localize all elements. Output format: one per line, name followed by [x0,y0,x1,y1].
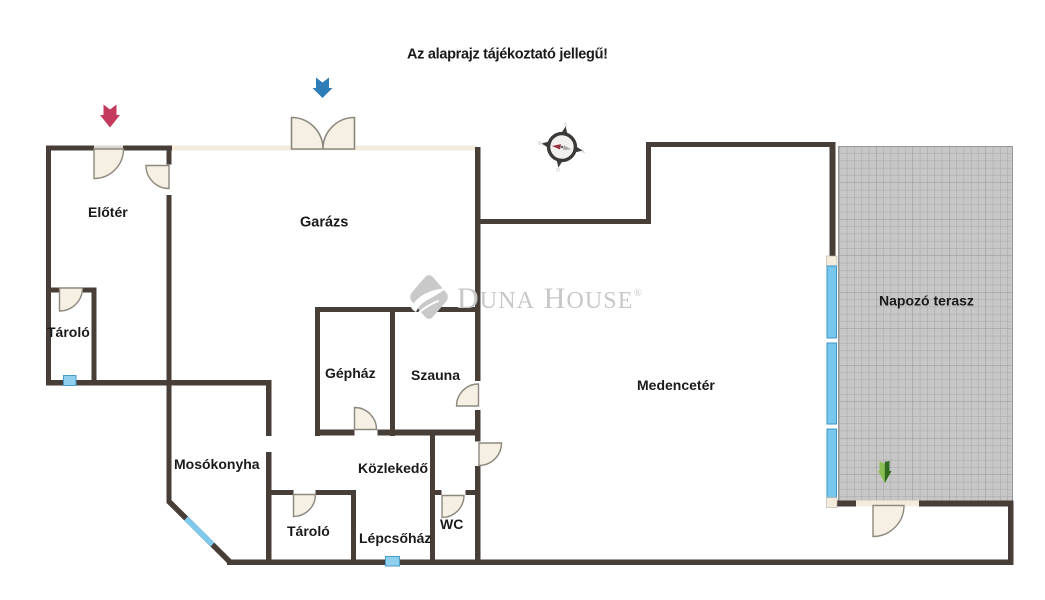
svg-text:Közlekedő: Közlekedő [358,460,428,476]
svg-text:Napozó terasz: Napozó terasz [879,293,974,309]
svg-text:DUNA HOUSE®: DUNA HOUSE® [457,282,643,315]
svg-text:Medencetér: Medencetér [637,377,715,393]
svg-text:Előtér: Előtér [88,204,128,220]
svg-text:Szauna: Szauna [411,367,460,383]
svg-text:Az alaprajz tájékoztató jelleg: Az alaprajz tájékoztató jellegű! [407,47,608,63]
svg-text:Mosókonyha: Mosókonyha [174,456,260,472]
svg-text:Gépház: Gépház [325,365,376,381]
svg-text:D: D [556,169,560,174]
svg-text:Ny: Ny [538,142,545,147]
svg-text:Lépcsőház: Lépcsőház [359,530,431,546]
svg-text:É: É [564,123,567,129]
svg-text:Tároló: Tároló [47,324,90,340]
svg-text:Tároló: Tároló [287,523,330,539]
svg-text:WC: WC [440,516,463,532]
svg-text:Garázs: Garázs [300,215,348,231]
svg-text:K: K [581,150,585,155]
